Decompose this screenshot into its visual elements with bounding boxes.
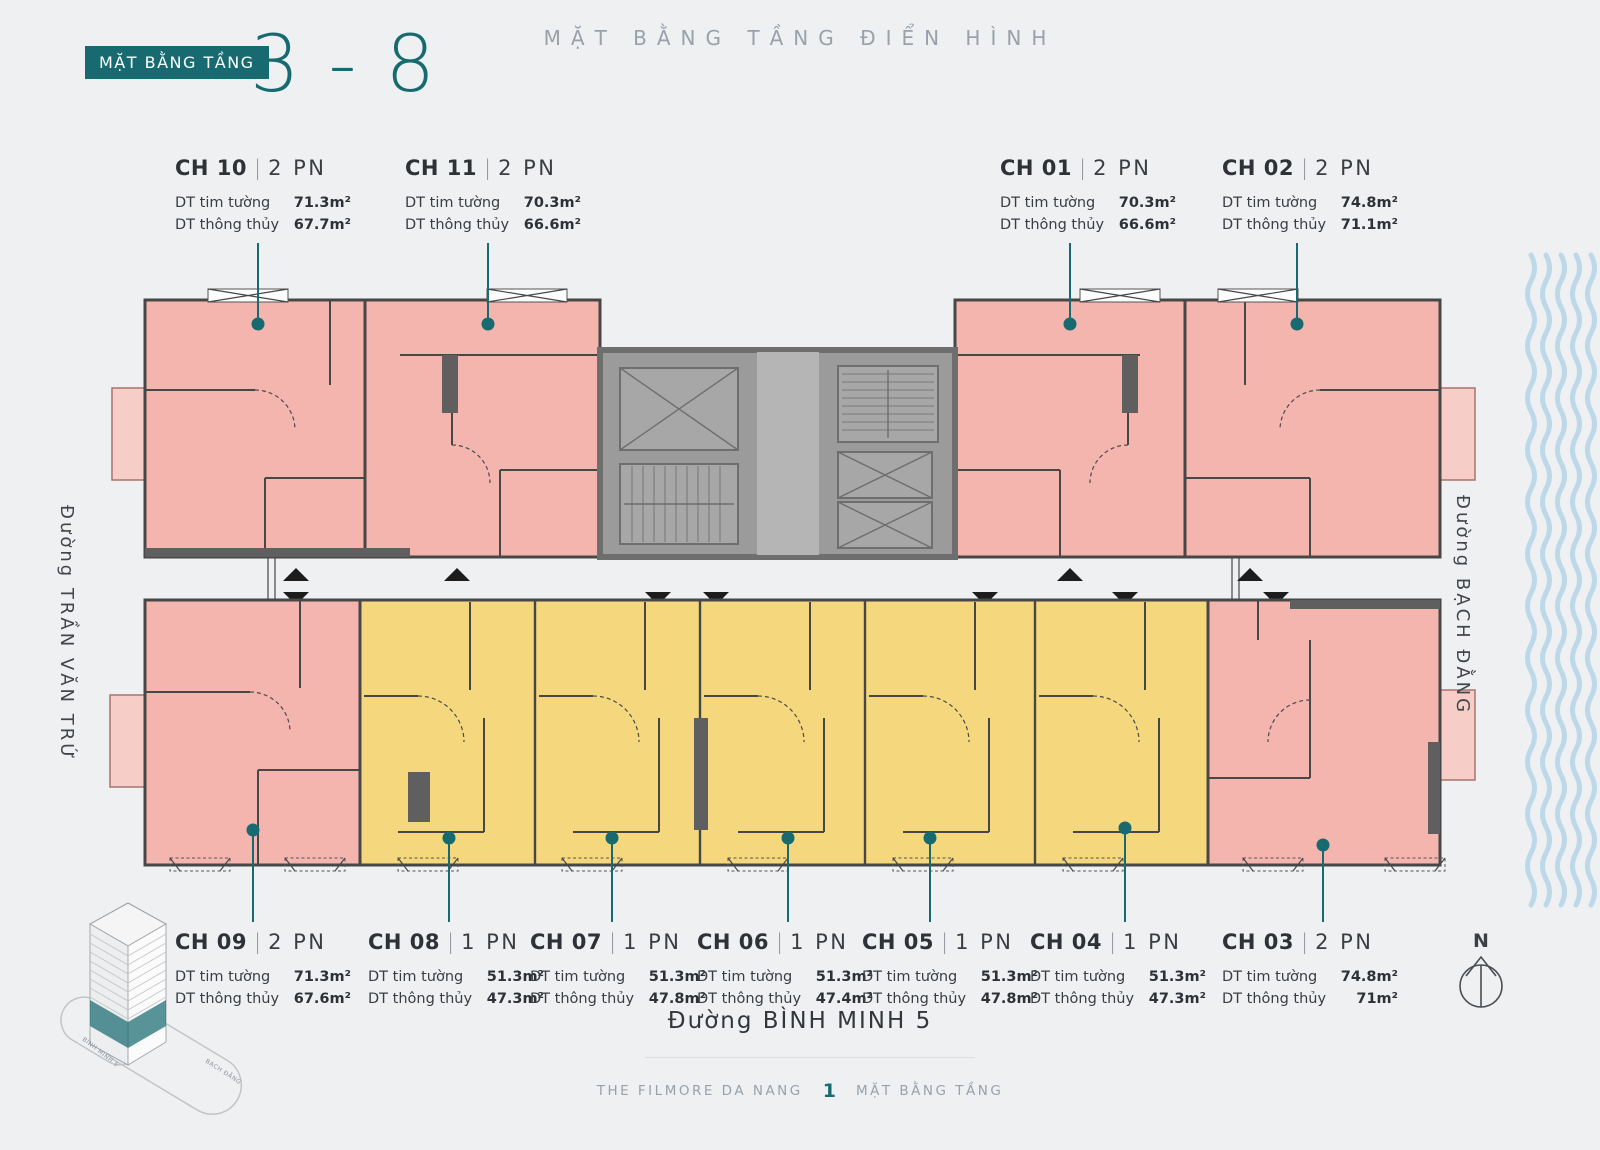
unit-title: CH 04|1 PN <box>1030 930 1206 954</box>
compass-north-icon: N <box>1460 930 1502 1007</box>
unit-label-ch01: CH 01|2 PN DT tim tường70.3m² DT thông t… <box>1000 156 1176 237</box>
unit-title: CH 05|1 PN <box>862 930 1038 954</box>
bottom-wing <box>110 600 1475 865</box>
street-label-bottom: Đường BÌNH MINH 5 <box>0 1008 1600 1034</box>
core-block <box>600 350 955 557</box>
unit-label-ch04: CH 04|1 PN DT tim tường51.3m² DT thông t… <box>1030 930 1206 1011</box>
unit-title: CH 10|2 PN <box>175 156 351 180</box>
unit-area-ch03 <box>1208 600 1440 865</box>
unit-label-ch06: CH 06|1 PN DT tim tường51.3m² DT thông t… <box>697 930 873 1011</box>
footer-section-name: MẶT BẰNG TẦNG <box>856 1083 1003 1099</box>
footer-divider <box>645 1057 975 1058</box>
unit-area-ch10 <box>145 300 365 557</box>
unit-title: CH 06|1 PN <box>697 930 873 954</box>
unit-label-ch10: CH 10|2 PN DT tim tường71.3m² DT thông t… <box>175 156 351 237</box>
balcony-right-top <box>1440 388 1475 480</box>
unit-area-ch11 <box>365 300 600 557</box>
floor-plan-page: N BÌNH MINH 5 BẠCH ĐẰNG MẶT BẰNG TẦNG 3 … <box>0 0 1600 1150</box>
unit-title: CH 11|2 PN <box>405 156 581 180</box>
page-title: MẶT BẰNG TẦNG ĐIỂN HÌNH <box>0 26 1600 50</box>
floor-badge: MẶT BẰNG TẦNG <box>85 46 269 79</box>
unit-label-ch09: CH 09|2 PN DT tim tường71.3m² DT thông t… <box>175 930 351 1011</box>
unit-title: CH 08|1 PN <box>368 930 544 954</box>
unit-label-ch03: CH 03|2 PN DT tim tường74.8m² DT thông t… <box>1222 930 1398 1011</box>
top-wing <box>112 300 1475 557</box>
footer-page-number: 1 <box>823 1080 836 1102</box>
river-wave-pattern <box>1528 255 1595 905</box>
street-label-left: Đường TRẦN VĂN TRỨ <box>56 505 77 762</box>
street-label-right: Đường BẠCH ĐẰNG <box>1452 495 1473 715</box>
unit-label-ch05: CH 05|1 PN DT tim tường51.3m² DT thông t… <box>862 930 1038 1011</box>
unit-area-ch02 <box>1185 300 1440 557</box>
unit-title: CH 09|2 PN <box>175 930 351 954</box>
unit-title: CH 03|2 PN <box>1222 930 1398 954</box>
unit-area-ch01 <box>955 300 1185 557</box>
unit-label-ch02: CH 02|2 PN DT tim tường74.8m² DT thông t… <box>1222 156 1398 237</box>
balcony-left-bottom <box>110 695 145 787</box>
footer: THE FILMORE DA NANG 1 MẶT BẰNG TẦNG <box>0 1080 1600 1102</box>
unit-label-ch08: CH 08|1 PN DT tim tường51.3m² DT thông t… <box>368 930 544 1011</box>
footer-project-name: THE FILMORE DA NANG <box>597 1083 803 1099</box>
unit-title: CH 02|2 PN <box>1222 156 1398 180</box>
unit-label-ch11: CH 11|2 PN DT tim tường70.3m² DT thông t… <box>405 156 581 237</box>
unit-label-ch07: CH 07|1 PN DT tim tường51.3m² DT thông t… <box>530 930 706 1011</box>
balcony-left-top <box>112 388 145 480</box>
unit-title: CH 01|2 PN <box>1000 156 1176 180</box>
compass-north-label: N <box>1473 930 1489 952</box>
unit-title: CH 07|1 PN <box>530 930 706 954</box>
one-bedroom-strip <box>360 600 1208 865</box>
